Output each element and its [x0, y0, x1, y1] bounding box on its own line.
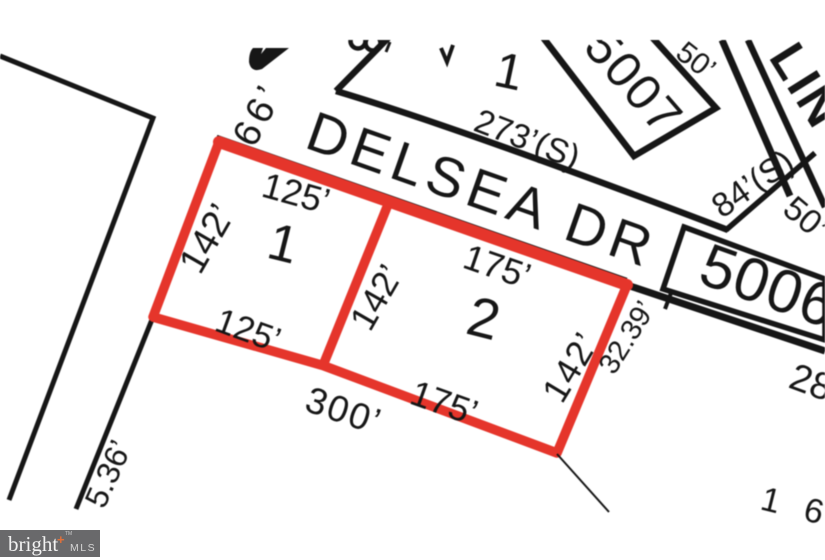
svg-text:5006: 5006: [692, 230, 825, 341]
svg-text:1 6: 1 6: [757, 480, 825, 534]
svg-text:5.36’: 5.36’: [78, 435, 139, 513]
svg-text:175’: 175’: [405, 372, 483, 433]
svg-text:28: 28: [784, 356, 825, 410]
svg-text:125’: 125’: [210, 301, 286, 360]
svg-text:1: 1: [262, 212, 304, 275]
svg-text:2: 2: [461, 284, 506, 353]
svg-text:1: 1: [490, 41, 529, 102]
svg-text:142’: 142’: [171, 197, 243, 280]
svg-text:142’: 142’: [341, 258, 411, 337]
